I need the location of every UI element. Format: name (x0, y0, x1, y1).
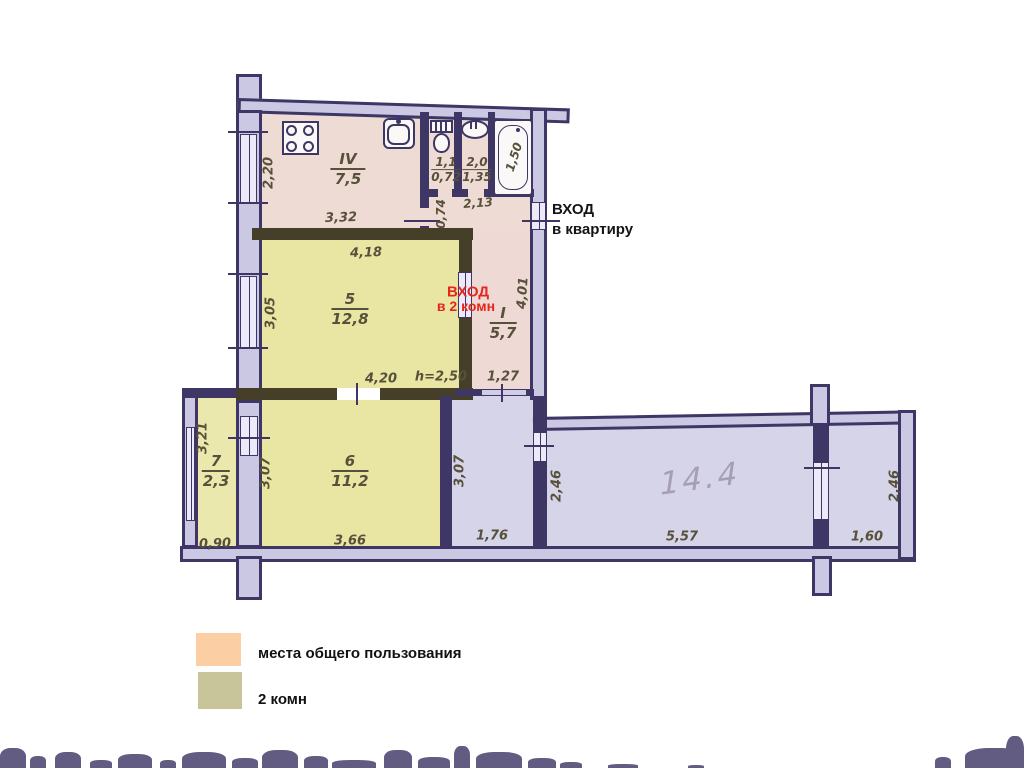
room-area: 11,2 (331, 472, 368, 492)
wall-room5-right-a (459, 240, 472, 272)
stove-burner-icon (286, 141, 297, 152)
toilet-bowl-icon (433, 133, 450, 153)
wall-corridor-partition-b (533, 462, 547, 548)
tick (228, 202, 268, 204)
legend-label-common: места общего пользования (258, 645, 462, 662)
wall-corridor-partition-a (533, 396, 547, 432)
dim-bigroom-bottom: 5,57 (666, 530, 698, 545)
kitchen-sink-basin (387, 124, 410, 145)
room-area-top: 2,0 (462, 156, 492, 170)
dim-room7-bottom: 0,90 (199, 536, 232, 552)
dim-right-width: 2,46 (888, 470, 903, 502)
dim-corridor-bottom: 1,76 (476, 529, 508, 544)
wall-room6-right (440, 396, 452, 548)
stove-burner-icon (303, 141, 314, 152)
dim-right-bottom: 1,60 (851, 530, 883, 545)
tick (356, 383, 358, 405)
wall-room7-top (182, 388, 236, 398)
scan-artifact (454, 746, 470, 768)
scan-artifact (55, 752, 81, 768)
entrance-door-opening (531, 202, 546, 230)
wall-wc-bottom-1 (420, 189, 438, 197)
room-area: 2,3 (202, 472, 230, 492)
corridor-door-opening (533, 432, 547, 462)
dim-room5-bottom: 4,20 (365, 372, 397, 387)
scan-artifact (560, 762, 582, 768)
dim-room5-top: 4,18 (350, 245, 383, 261)
dim-bath-length: 2,13 (463, 195, 494, 211)
wall-stub-below-right (812, 556, 832, 596)
room-area-top: 1,1 (431, 156, 461, 170)
room7-window (186, 427, 195, 521)
room-area: 12,8 (331, 310, 368, 330)
dim-room5-left: 3,05 (264, 297, 279, 329)
kitchen-window (240, 134, 257, 204)
scan-artifact (1006, 736, 1024, 768)
floorplan-scan: 2,20 3,32 1,50 0,74 2,13 4,18 3,05 4,20 … (0, 0, 1024, 768)
legend-swatch-common (196, 633, 241, 666)
room-number: 6 (331, 453, 368, 472)
room-area-bottom: 0,72 (431, 170, 461, 186)
room-label-6: 6 11,2 (331, 453, 368, 491)
washbasin-tap (470, 122, 472, 129)
tick (804, 467, 840, 469)
kitchen-sink-tap (396, 119, 401, 124)
entrance-rooms-line2: в 2 комн (437, 298, 495, 314)
room-number: IV (330, 151, 365, 170)
legend-swatch-rooms (198, 672, 242, 709)
toilet-tank-line (435, 122, 437, 131)
tick (228, 347, 268, 349)
scan-artifact (332, 760, 376, 768)
tick (228, 273, 268, 275)
scan-artifact (608, 764, 638, 768)
wall-stub-bottom-left (236, 556, 262, 600)
room-number: 7 (202, 453, 230, 472)
dim-kitchen-width: 2,20 (262, 157, 277, 189)
stove-burner-icon (303, 125, 314, 136)
room-label-wc: 1,1 0,72 (431, 156, 461, 186)
mid-partition-window (813, 462, 829, 520)
bathtub-drain (516, 128, 520, 132)
wall-mid-partition-b (813, 520, 829, 548)
tick (228, 131, 268, 133)
room-area: 5,7 (490, 324, 517, 344)
scan-artifact (384, 750, 412, 768)
stove-burner-icon (286, 125, 297, 136)
washbasin-tap (475, 122, 477, 129)
hall-corridor-opening (482, 390, 526, 395)
scan-artifact (232, 758, 258, 768)
entrance-apartment-line2: в квартиру (552, 220, 633, 240)
dim-hall-bottom: 1,27 (487, 370, 519, 385)
wall-room5-top (252, 228, 473, 240)
scan-artifact (90, 760, 112, 768)
scan-artifact (0, 748, 26, 768)
dim-room6-left: 3,07 (259, 457, 274, 489)
tick (524, 445, 554, 447)
room-label-7: 7 2,3 (202, 453, 230, 491)
room-area: 7,5 (330, 170, 365, 190)
dim-hall-height: 4,01 (514, 276, 531, 309)
wall-bottom (180, 546, 916, 562)
room-label-kitchen: IV 7,5 (330, 151, 365, 189)
scan-artifact (182, 752, 226, 768)
scan-artifact (418, 757, 450, 768)
dim-ceiling-height: h=2,50 (415, 370, 467, 385)
scan-artifact (528, 758, 556, 768)
toilet-tank-line (445, 122, 447, 131)
dim-corridor-left: 3,07 (453, 455, 468, 487)
dim-kitchen-length: 3,32 (325, 210, 358, 226)
wall-mid-partition-a (813, 424, 829, 462)
scan-artifact (160, 760, 176, 768)
scan-artifact (304, 756, 328, 768)
dim-room7-left: 3,21 (196, 422, 211, 454)
entrance-apartment-line1: ВХОД (552, 200, 633, 220)
dim-corridor-width: 2,46 (550, 470, 565, 502)
dim-passage-width: 0,74 (434, 199, 448, 229)
room-number: 5 (331, 291, 368, 310)
wall-room5-bottom-a (236, 388, 337, 400)
scan-artifact (262, 750, 298, 768)
tick (228, 437, 270, 439)
room5-window (240, 276, 257, 348)
room7-door-opening (240, 416, 258, 456)
scan-artifact (118, 754, 152, 768)
dim-room6-bottom: 3,66 (334, 534, 366, 549)
room-label-5: 5 12,8 (331, 291, 368, 329)
scan-artifact (476, 752, 522, 768)
toilet-tank-line (440, 122, 442, 131)
wall-stub-above-right (810, 384, 830, 426)
room-area-bottom: 1,35 (462, 170, 492, 186)
tick (501, 384, 503, 402)
room-label-bath: 2,0 1,35 (462, 156, 492, 186)
entrance-apartment-label: ВХОД в квартиру (552, 200, 633, 239)
legend-label-rooms: 2 комн (258, 691, 307, 708)
scan-artifact (935, 757, 951, 768)
scan-artifact (30, 756, 46, 768)
